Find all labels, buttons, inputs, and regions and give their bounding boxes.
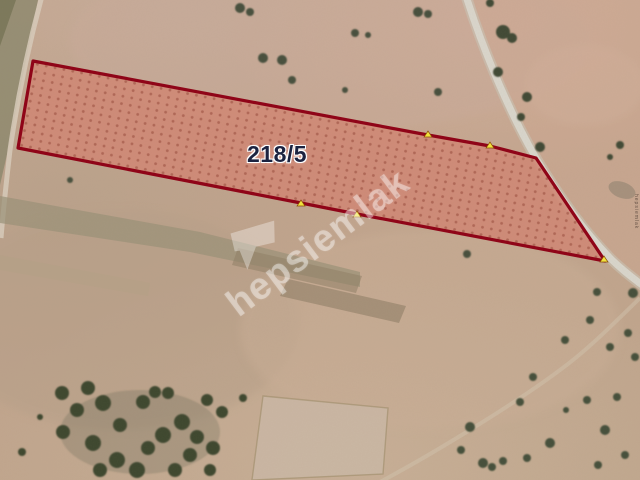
edge-watermark-text: hepsiemlak [633, 194, 639, 229]
satellite-map[interactable]: hepsiemlak 218/5 hepsiemlak [0, 0, 640, 480]
parcel-label: 218/5 [247, 141, 307, 168]
noise-overlay [0, 0, 640, 480]
hepsiemlak-logo-icon [227, 218, 283, 274]
terrain-layer [0, 0, 640, 480]
